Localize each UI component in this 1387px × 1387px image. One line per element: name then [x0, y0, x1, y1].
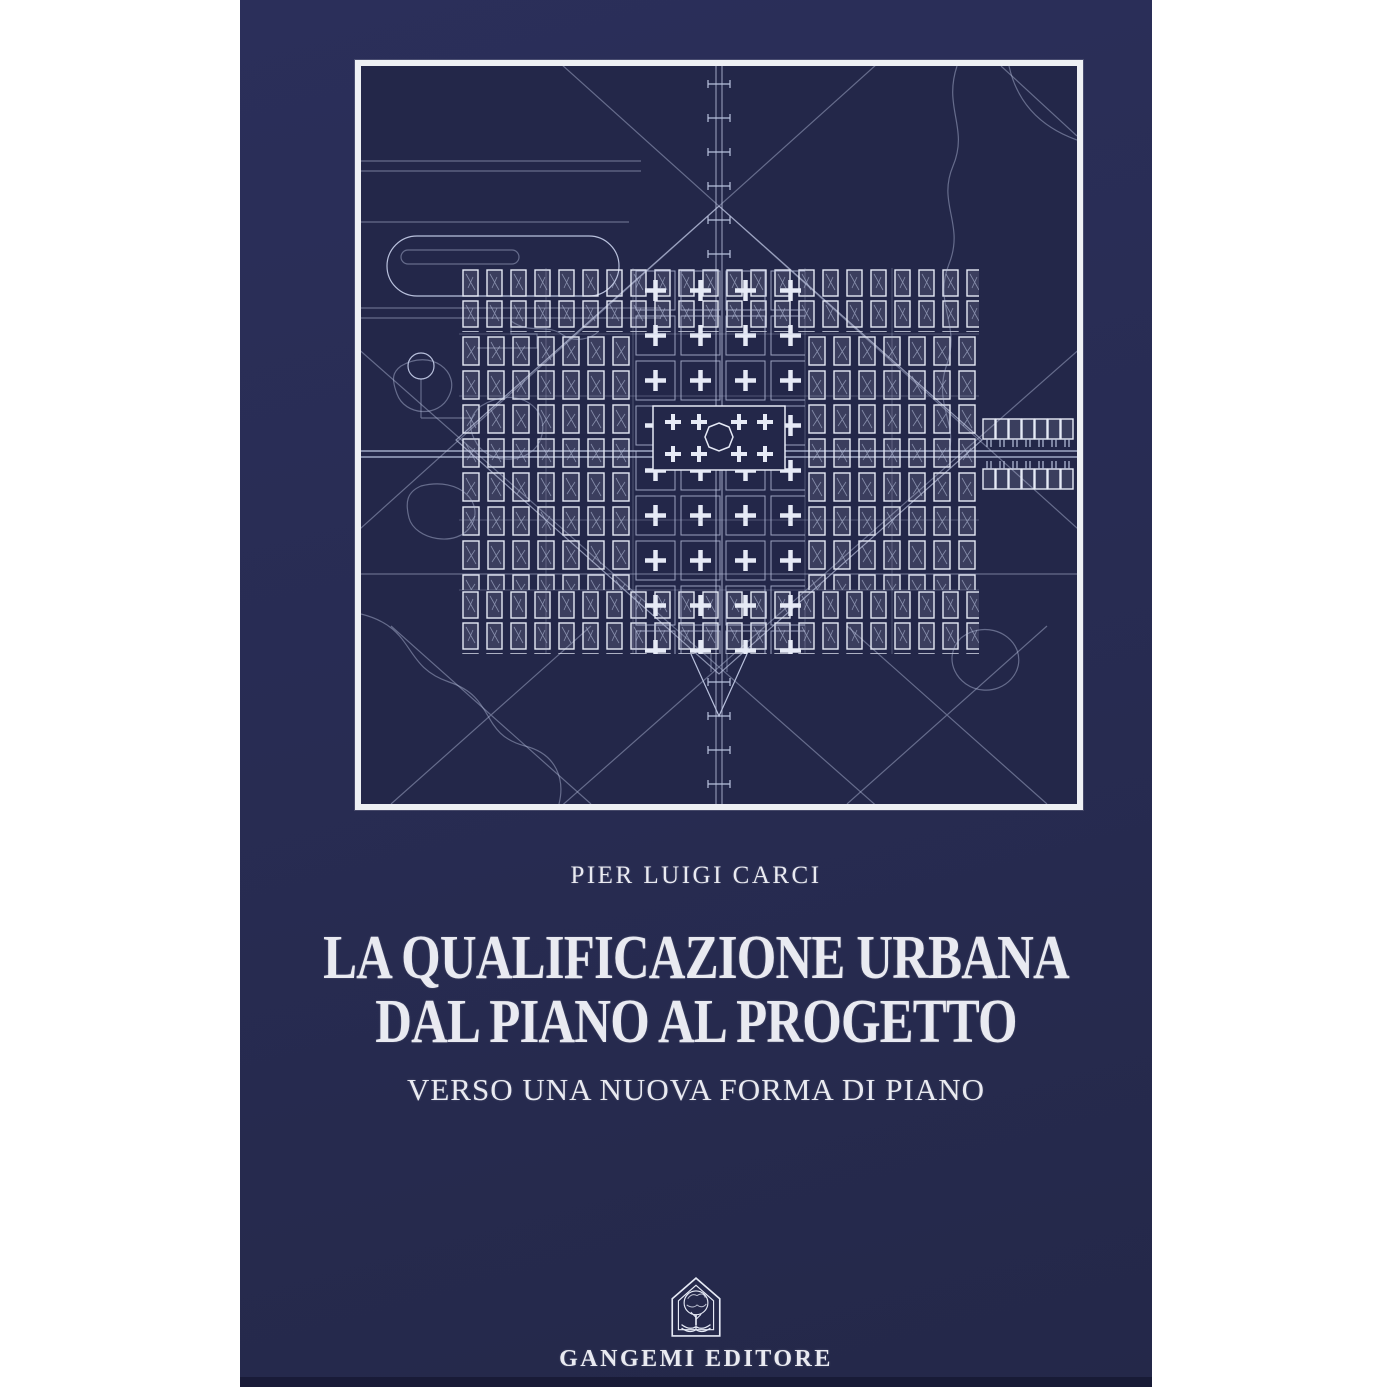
title-line-1: LA QUALIFICAZIONE URBANA [322, 926, 1070, 990]
central-plaza [653, 406, 785, 470]
publisher-logo-icon [669, 1276, 723, 1338]
book-title: LA QUALIFICAZIONE URBANA DAL PIANO AL PR… [322, 926, 1070, 1054]
book-cover: PIER LUIGI CARCI LA QUALIFICAZIONE URBAN… [240, 0, 1152, 1387]
publisher-name: GANGEMI EDITORE [240, 1346, 1152, 1373]
product-photo: PIER LUIGI CARCI LA QUALIFICAZIONE URBAN… [0, 0, 1387, 1387]
cover-artwork-frame [355, 60, 1083, 810]
east-road-blocks [983, 419, 1073, 489]
book-subtitle: VERSO UNA NUOVA FORMA DI PIANO [240, 1072, 1152, 1108]
publisher-block: GANGEMI EDITORE [240, 1276, 1152, 1373]
title-line-2: DAL PIANO AL PROGETTO [322, 990, 1070, 1054]
city-plan-blueprint-icon [361, 66, 1077, 804]
author-name: PIER LUIGI CARCI [240, 862, 1152, 890]
